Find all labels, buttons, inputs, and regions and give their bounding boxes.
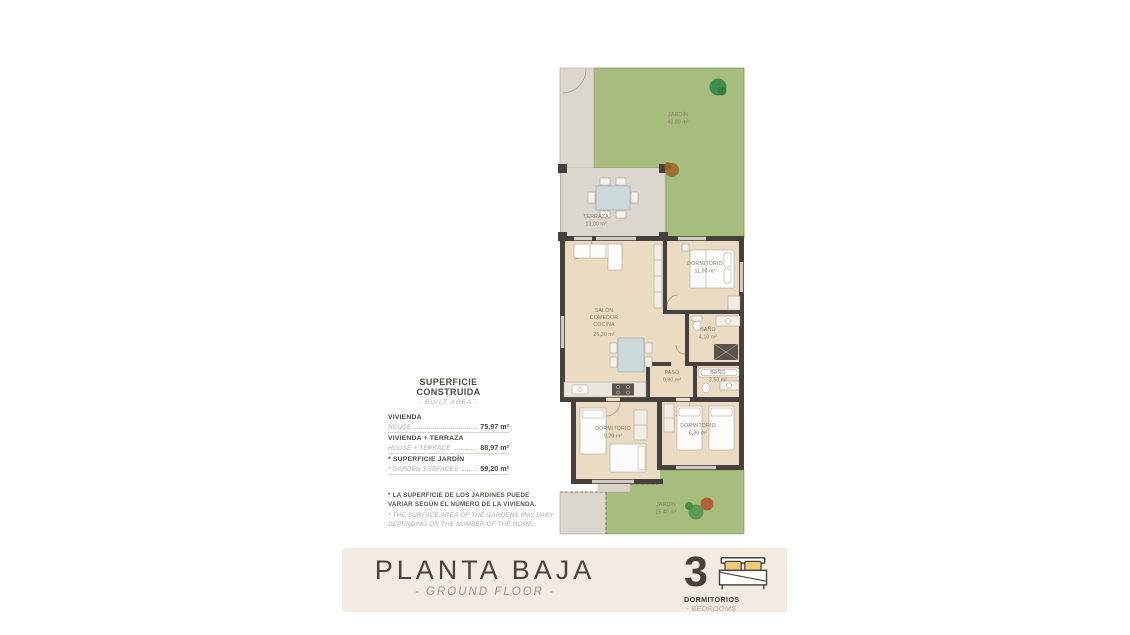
floor-plan: JARDÍN 43,80 m² TERRAZA 13,00 m² SALÓN C… xyxy=(558,66,748,536)
kitchen-counter xyxy=(564,382,646,397)
window-salon-top xyxy=(596,237,636,240)
room-area-bano-2: 3,50 m² xyxy=(709,378,727,384)
bush-shadow xyxy=(664,162,672,170)
floor-title-block: PLANTA BAJA - GROUND FLOOR - xyxy=(360,556,610,598)
area-row-label-es: * SUPERFICIE JARDÍN xyxy=(388,456,509,463)
room-label-dormitorio-2: DORMITORIO xyxy=(595,426,631,432)
wall-bath2-left xyxy=(693,366,697,402)
room-label-dormitorio-3: DORMITORIO xyxy=(680,423,716,429)
wall-bath1-left xyxy=(685,314,689,366)
page-title: PLANTA BAJA xyxy=(360,556,610,584)
disclaimer-en: * THE SURFACE AREA OF THE GARDENS MAY VA… xyxy=(388,511,556,529)
window-salon-left xyxy=(561,316,564,348)
room-label-salon-1: SALÓN xyxy=(595,307,614,314)
area-row-label-es: VIVIENDA + TERRAZA xyxy=(388,435,509,442)
terrace-edge-left xyxy=(560,168,561,238)
built-area-panel: SUPERFICIE CONSTRUIDA - BUILT AREA - VIV… xyxy=(388,377,509,475)
area-row-label-es: VIVIENDA xyxy=(388,414,509,421)
dotted-leader xyxy=(415,428,476,429)
room-label-salon-2: COMEDOR xyxy=(590,315,619,321)
bedrooms-count: 3 xyxy=(684,552,708,593)
area-row-label-en: HOUSE xyxy=(388,424,411,431)
bedrooms-label-en: BEDROOMS xyxy=(691,604,736,613)
room-label-dormitorio-1: DORMITORIO xyxy=(687,261,723,267)
garden-path-top xyxy=(560,68,594,168)
bedrooms-label-es: DORMITORIOS xyxy=(684,595,739,604)
pillar xyxy=(558,164,567,173)
shrub-red-icon xyxy=(701,498,714,511)
garden-path-bottom xyxy=(560,492,606,534)
room-label-jardin-top: JARDÍN xyxy=(668,111,688,118)
area-row-garden: * SUPERFICIE JARDÍN * GARDEN SURFACES 59… xyxy=(388,454,509,475)
room-area-terraza: 13,00 m² xyxy=(585,222,606,228)
wall-bed2-left xyxy=(571,397,576,484)
room-label-terraza: TERRAZA xyxy=(583,214,609,220)
garden-disclaimer: * LA SUPERFICIE DE LOS JARDINES PUEDE VA… xyxy=(388,491,556,530)
room-area-jardin-top: 43,80 m² xyxy=(667,120,688,126)
shrub-small xyxy=(685,502,693,510)
built-area-title: SUPERFICIE CONSTRUIDA xyxy=(388,377,509,397)
garden-step xyxy=(598,483,630,492)
dotted-leader xyxy=(462,470,476,471)
room-label-jardin-bottom: JARDÍN xyxy=(656,501,676,508)
door-gap-dorm2 xyxy=(606,398,620,401)
room-label-bano-2: BAÑO xyxy=(710,369,726,376)
wall-bed2-bed3 xyxy=(657,400,662,470)
room-area-dormitorio-2: 9,20 m² xyxy=(604,434,622,440)
room-area-bano-1: 4,10 m² xyxy=(699,335,717,341)
door-gap-terrace xyxy=(574,237,592,240)
window-dorm3 xyxy=(676,466,716,469)
window-dorm2 xyxy=(592,480,634,483)
wall-mid xyxy=(560,397,744,402)
pillar xyxy=(558,232,567,241)
room-label-salon-3: COCINA xyxy=(593,322,615,328)
pillar xyxy=(659,232,668,241)
room-area-salon: 26,30 m² xyxy=(593,332,614,338)
terrace-edge-right xyxy=(665,168,666,238)
room-area-paso: 0,90 m² xyxy=(663,378,681,384)
wall-dorm1-bottom xyxy=(663,310,744,314)
brochure-page: JARDÍN 43,80 m² TERRAZA 13,00 m² SALÓN C… xyxy=(0,0,1130,635)
tree-shadow xyxy=(718,87,727,96)
window-dorm1-right xyxy=(740,262,743,292)
bedrooms-badge: 3 DORMITORIOS - BEDROOMS xyxy=(684,552,787,613)
wall-salon-dorm xyxy=(663,236,667,314)
area-row-label-en: * GARDEN SURFACES xyxy=(388,466,458,473)
built-area-subtitle: - BUILT AREA - xyxy=(388,399,509,406)
area-row-house-terrace: VIVIENDA + TERRAZA HOUSE + TERRACE 88,97… xyxy=(388,433,509,454)
dotted-leader xyxy=(455,449,477,450)
area-row-label-en: HOUSE + TERRACE xyxy=(388,445,451,452)
wall-bath1-bottom xyxy=(685,362,744,366)
area-row-value: 59,20 m² xyxy=(480,464,509,473)
area-row-value: 75,97 m² xyxy=(480,422,509,431)
page-subtitle: - GROUND FLOOR - xyxy=(360,586,610,598)
area-row-house: VIVIENDA HOUSE 75,97 m² xyxy=(388,412,509,433)
disclaimer-es: * LA SUPERFICIE DE LOS JARDINES PUEDE VA… xyxy=(388,491,556,509)
room-label-paso: PASO xyxy=(665,370,680,376)
room-area-dormitorio-1: 11,90 m² xyxy=(695,269,716,275)
footer-bar: PLANTA BAJA - GROUND FLOOR - 3 DORMITORI… xyxy=(342,548,787,612)
area-row-value: 88,97 m² xyxy=(480,443,509,452)
room-area-jardin-bottom: 15,40 m² xyxy=(655,510,676,516)
wall-paso-left xyxy=(646,362,650,402)
door-gap-dorm3 xyxy=(676,398,690,401)
room-label-bano-1: BAÑO xyxy=(700,326,716,333)
bedrooms-label: DORMITORIOS - BEDROOMS xyxy=(684,595,787,613)
window-dorm1 xyxy=(678,237,706,240)
room-area-dormitorio-3: 8,80 m² xyxy=(689,431,707,437)
bed-icon xyxy=(715,555,771,593)
